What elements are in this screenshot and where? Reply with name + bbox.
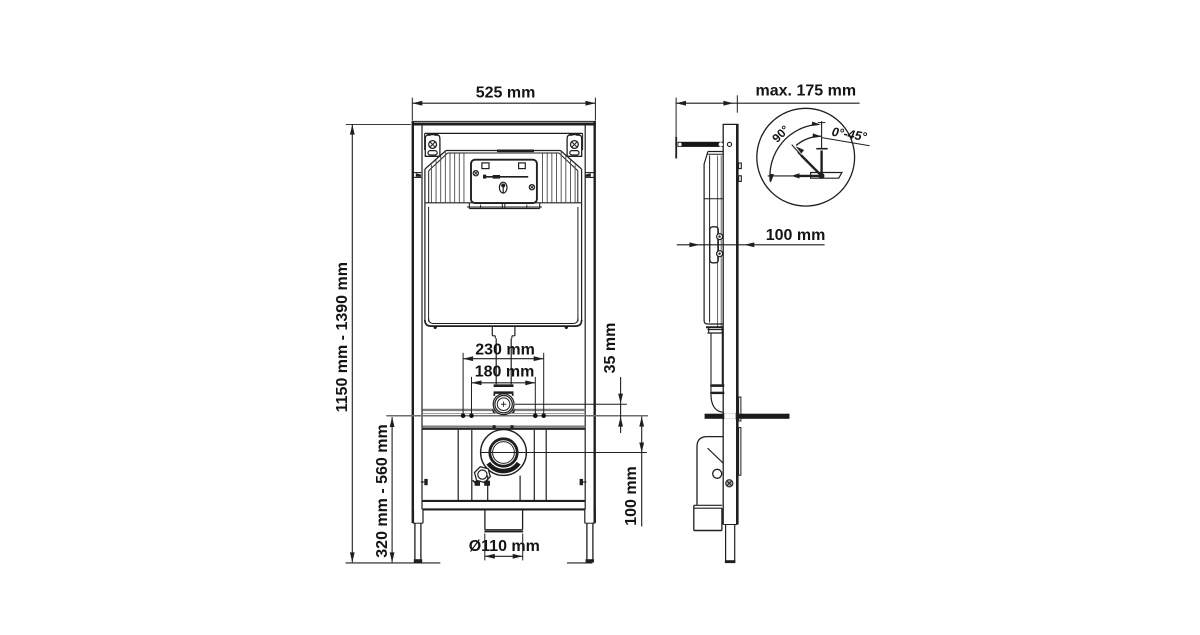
svg-text:100 mm: 100 mm (766, 227, 826, 244)
svg-text:180 mm: 180 mm (475, 364, 535, 381)
svg-text:Ø110 mm: Ø110 mm (469, 538, 540, 555)
svg-text:320 mm - 560 mm: 320 mm - 560 mm (374, 424, 391, 557)
svg-text:35 mm: 35 mm (602, 323, 619, 374)
svg-text:1150 mm - 1390 mm: 1150 mm - 1390 mm (334, 262, 351, 412)
svg-text:230 mm: 230 mm (475, 342, 535, 359)
svg-text:max. 175 mm: max. 175 mm (756, 83, 857, 100)
svg-text:100 mm: 100 mm (623, 466, 640, 526)
svg-text:525 mm: 525 mm (476, 85, 536, 102)
